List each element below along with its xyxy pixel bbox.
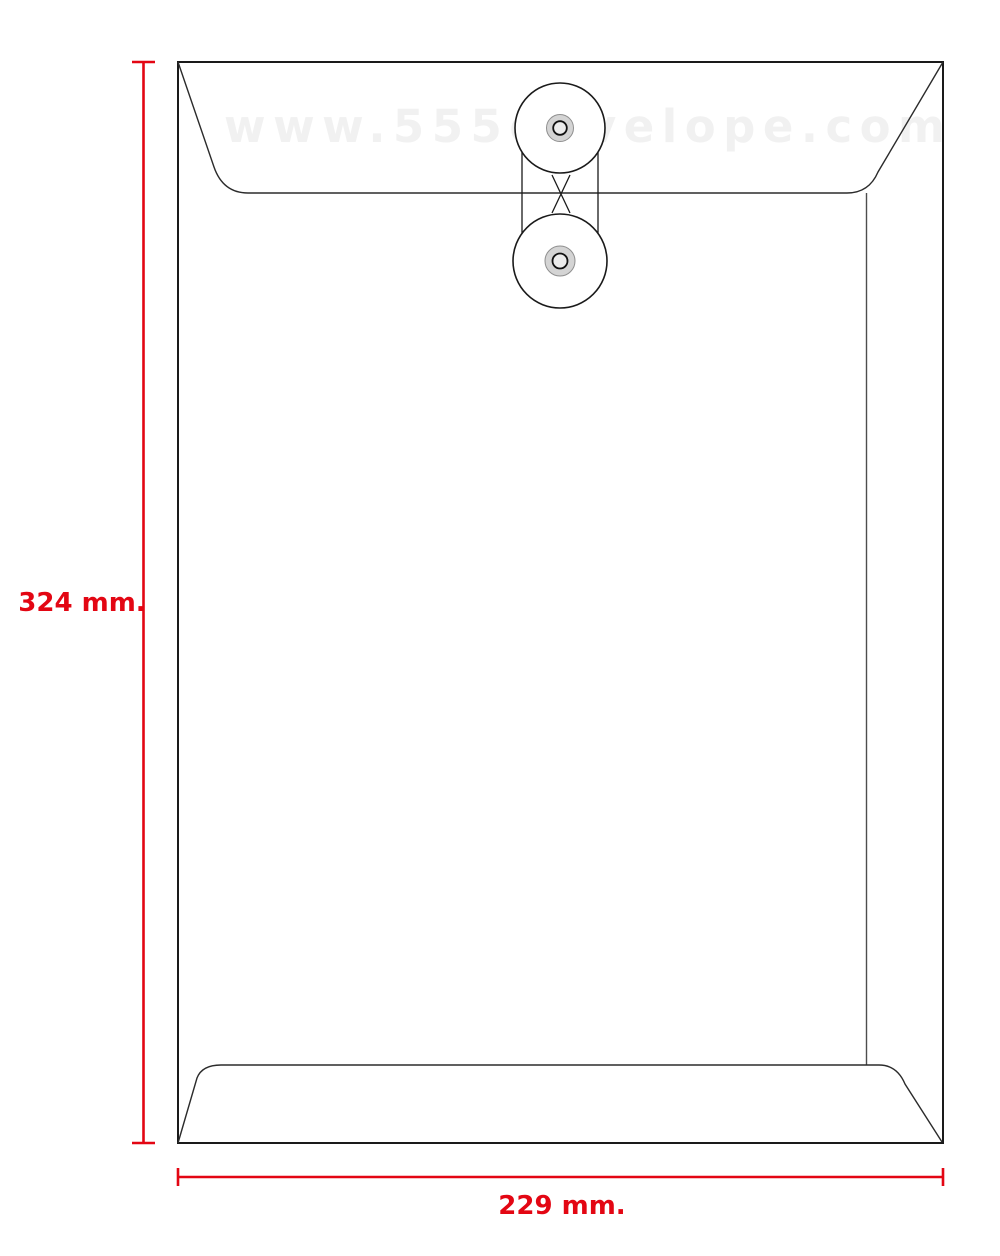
width-dimension-label: 229 mm. <box>498 1191 625 1221</box>
envelope-diagram-svg: www.555envelope.com 324 mm. <box>0 0 1000 1256</box>
top-button-eyelet-hole <box>553 121 567 135</box>
bottom-button-eyelet-hole <box>553 254 568 269</box>
width-dimension-line <box>178 1168 943 1186</box>
height-dimension-label: 324 mm. <box>18 588 145 618</box>
envelope-diagram: www.555envelope.com 324 mm. <box>0 0 1000 1256</box>
